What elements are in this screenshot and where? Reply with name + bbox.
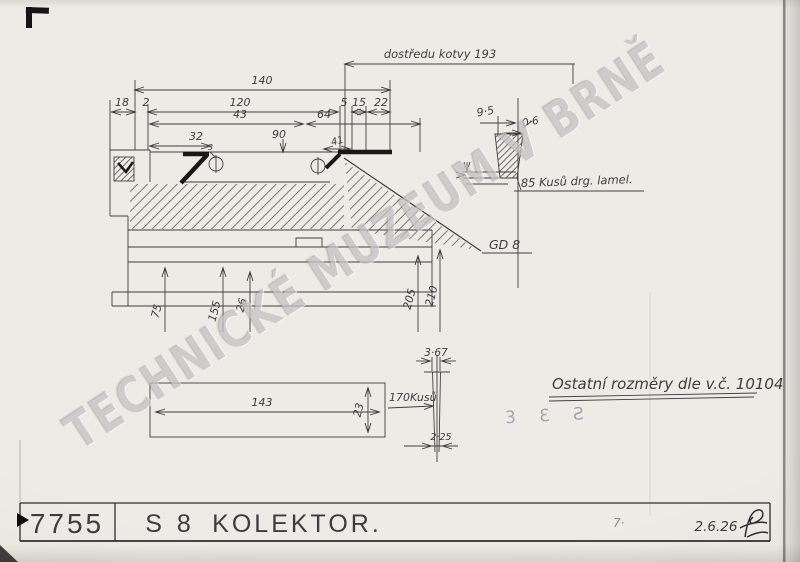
segment-detail-view (459, 98, 644, 288)
dim-22: 22 (374, 96, 388, 109)
signature-monogram (740, 510, 768, 537)
dim-2: 2 (143, 96, 150, 109)
dim-32: 32 (189, 130, 203, 143)
dim-90: 90 (272, 128, 286, 141)
note-lamellas-85: 85 Kusů drg. lamel. (521, 172, 633, 190)
dim-3: 3 (208, 143, 213, 152)
page-mark: 7· (613, 516, 624, 530)
dim-140: 140 (252, 74, 273, 87)
dim-41: 41 (330, 135, 345, 149)
dim-143: 143 (252, 396, 273, 409)
dim-9-5: 9·5 (476, 104, 495, 120)
dim-0-6: 0·6 (521, 115, 540, 130)
series-code: S 8 (145, 510, 195, 538)
scan-artifacts (0, 0, 786, 562)
dim-43: 43 (233, 108, 247, 121)
dim-3-67: 3·67 (424, 347, 448, 359)
dim-15: 15 (352, 96, 366, 109)
dim-row-d (150, 139, 350, 158)
dim-23: 23 (351, 402, 367, 419)
lamella-view (404, 356, 458, 462)
note-pieces-170: 170Kusů (389, 391, 437, 404)
dim-dia205: 205 (401, 287, 419, 311)
drawing-title: KOLEKTOR. (212, 510, 382, 538)
screw-holes (209, 155, 325, 175)
note-armature: dostředu kotvy 193 (384, 47, 496, 61)
dim-18: 18 (115, 96, 129, 109)
scan-edge-right (778, 0, 800, 562)
scan-edge-top (0, 0, 800, 8)
drawing-date: 2.6.26 (695, 519, 738, 535)
note-underline (549, 393, 757, 401)
dim-dia75: 75 (149, 303, 165, 320)
dim-64: 64 (317, 108, 331, 121)
dim-dia210: 210 (423, 284, 441, 308)
scanned-drawing-sheet: dostředu kotvy 193 140 18 2 120 5 15 22 … (0, 0, 800, 562)
drawing-number: 7755 (30, 508, 104, 539)
dim-dia155: 155 (206, 299, 224, 323)
technical-drawing: dostředu kotvy 193 140 18 2 120 5 15 22 … (0, 0, 800, 562)
dim-dia26: 26 (234, 297, 250, 314)
title-block: 7755 S 8 KOLEKTOR. 2.6.26 (20, 503, 770, 541)
section-hatching (114, 157, 477, 250)
note-other-dims: Ostatní rozměry dle v.č. 10104 (552, 375, 784, 393)
label-gd8: GD 8 (489, 237, 520, 252)
dim-5: 5 (341, 96, 348, 109)
scan-edge-bottom (0, 544, 800, 562)
dim-2-25: 2·25 (430, 432, 451, 443)
